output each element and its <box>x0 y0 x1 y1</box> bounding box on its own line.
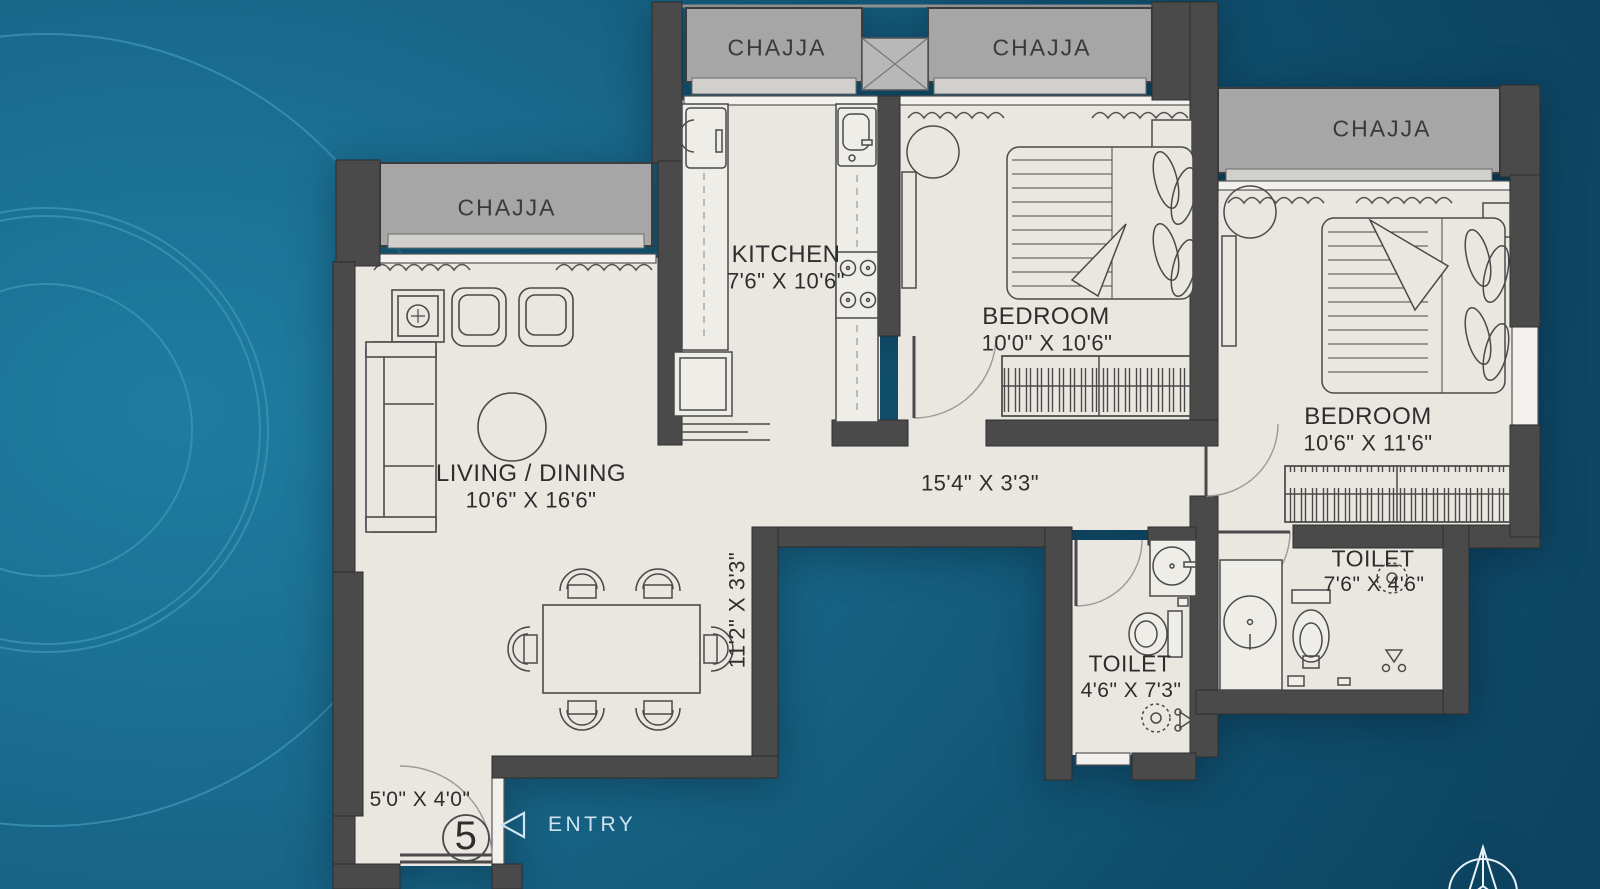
toilet1-dims: 4'6" X 7'3" <box>1081 678 1182 704</box>
passage-dims-horizontal: 15'4" X 3'3" <box>921 469 1039 497</box>
kitchen-name: KITCHEN <box>732 240 841 270</box>
toilet2-name: TOILET <box>1331 545 1414 574</box>
bedroom2-name: BEDROOM <box>1304 402 1432 432</box>
kitchen-sink-right <box>838 108 876 166</box>
washbasin <box>1220 560 1282 690</box>
armchair <box>452 288 506 346</box>
floor-trap <box>1338 678 1350 685</box>
dresser <box>902 172 916 288</box>
bedroom1-name: BEDROOM <box>982 302 1110 332</box>
soap-tray <box>1288 676 1304 686</box>
kitchen-dims: 7'6" X 10'6" <box>727 267 845 295</box>
compass-logo <box>1449 847 1517 889</box>
kitchen-sink-left <box>680 108 726 168</box>
washbasin <box>1150 540 1196 596</box>
entry-arrow-icon <box>502 813 524 837</box>
bed <box>1007 147 1202 299</box>
entry-label: ENTRY <box>548 813 636 837</box>
bedroom2-dims: 10'6" X 11'6" <box>1303 429 1432 457</box>
duct-shaft <box>862 38 928 90</box>
living-room-dims: 10'6" X 16'6" <box>466 486 597 514</box>
unit-number: 5 <box>455 811 478 861</box>
passage-dims-vertical: 11'2" X 3'3" <box>723 552 751 668</box>
kitchen-cabinet <box>674 352 732 416</box>
wardrobe <box>1285 466 1510 522</box>
dresser <box>1222 236 1236 346</box>
bedroom1-dims: 10'0" X 10'6" <box>982 329 1113 357</box>
wardrobe <box>1002 356 1196 416</box>
utility-box <box>392 290 444 342</box>
bed <box>1322 218 1514 393</box>
floor-plan-page: CHAJJA CHAJJA CHAJJA CHAJJA LIVING / DIN… <box>0 0 1600 889</box>
armchair <box>519 288 573 346</box>
toilet1-name: TOILET <box>1088 650 1171 679</box>
foyer-dims: 5'0" X 4'0" <box>370 787 471 813</box>
living-room-name: LIVING / DINING <box>436 459 626 489</box>
sofa <box>366 342 436 532</box>
toilet2-dims: 7'6" X 4'6" <box>1324 572 1425 598</box>
chajja-label-living: CHAJJA <box>458 194 557 223</box>
chajja-label-kitchen: CHAJJA <box>728 34 827 63</box>
chajja-label-bedroom1: CHAJJA <box>993 34 1092 63</box>
chajja-label-bedroom2: CHAJJA <box>1333 115 1432 144</box>
